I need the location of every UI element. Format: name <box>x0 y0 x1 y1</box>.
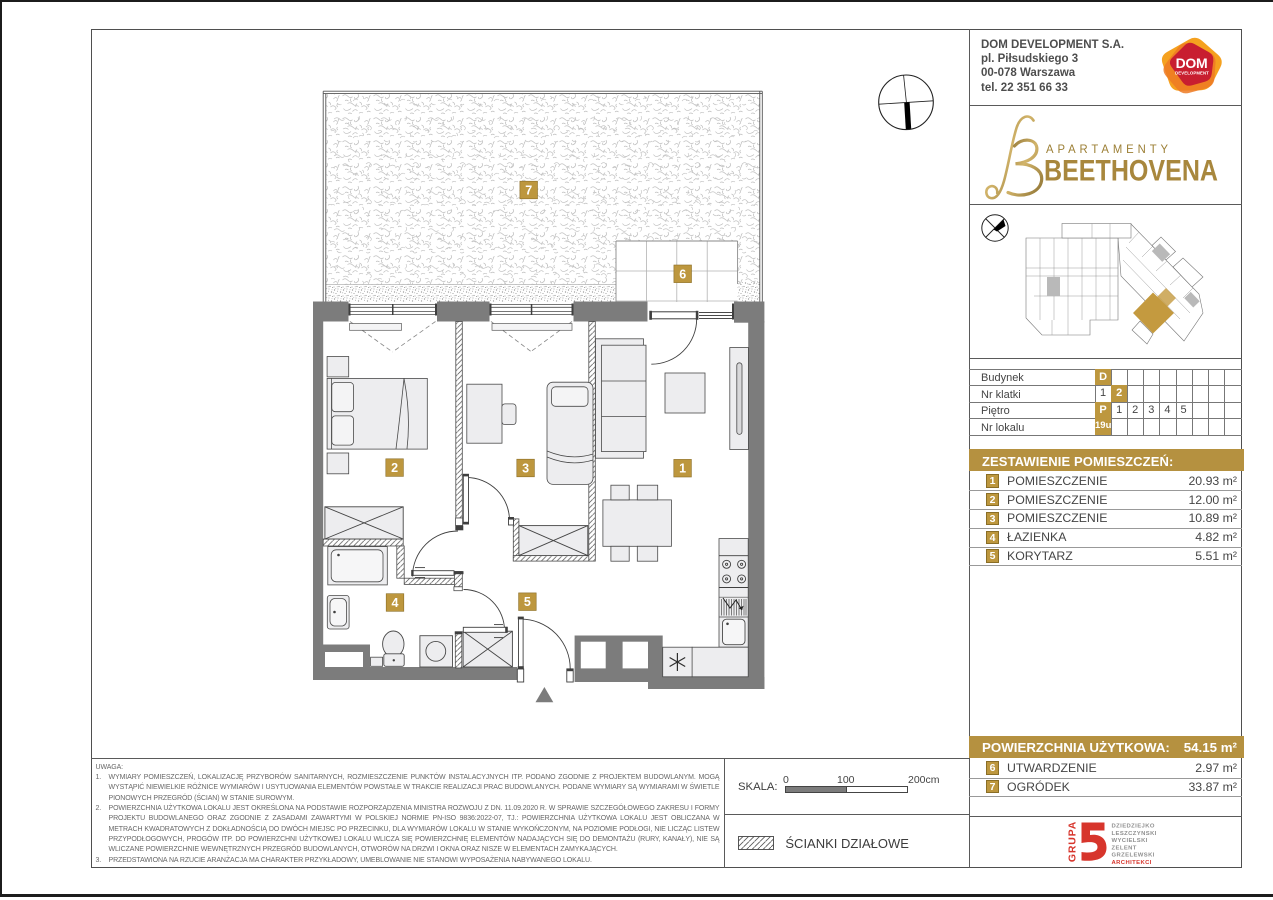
svg-text:DEVELOPMENT: DEVELOPMENT <box>1175 71 1209 76</box>
svg-text:2: 2 <box>391 461 398 475</box>
svg-text:4: 4 <box>392 596 399 610</box>
svg-text:5: 5 <box>524 595 531 609</box>
svg-text:3: 3 <box>522 462 529 476</box>
svg-text:BEETHOVENA: BEETHOVENA <box>1044 155 1218 188</box>
svg-text:6: 6 <box>679 267 686 281</box>
svg-text:DOM: DOM <box>1176 55 1208 71</box>
svg-text:1: 1 <box>679 462 686 476</box>
svg-text:7: 7 <box>525 184 532 198</box>
